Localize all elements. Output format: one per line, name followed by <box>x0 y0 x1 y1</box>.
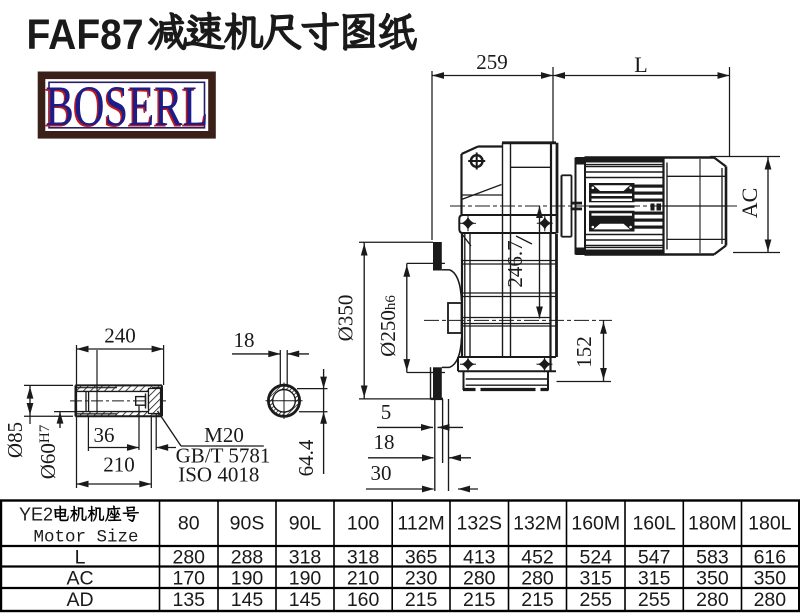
svg-text:100: 100 <box>347 513 380 535</box>
svg-text:452: 452 <box>521 547 554 569</box>
svg-text:547: 547 <box>638 547 671 569</box>
svg-text:246.7: 246.7 <box>503 240 527 287</box>
svg-text:64.4: 64.4 <box>294 439 318 476</box>
svg-text:AC: AC <box>737 188 762 219</box>
svg-text:Ø350: Ø350 <box>334 295 358 342</box>
svg-text:160: 160 <box>347 589 380 611</box>
svg-text:280: 280 <box>696 589 729 611</box>
svg-text:Ø85: Ø85 <box>3 422 27 458</box>
svg-text:BOSERL: BOSERL <box>46 75 209 138</box>
svg-text:YE2: YE2 <box>19 505 53 525</box>
svg-text:152: 152 <box>572 336 596 368</box>
svg-text:230: 230 <box>405 568 438 590</box>
svg-text:36: 36 <box>94 423 115 447</box>
svg-text:255: 255 <box>638 589 671 611</box>
svg-text:132M: 132M <box>513 513 562 535</box>
svg-text:145: 145 <box>289 589 322 611</box>
svg-text:135: 135 <box>172 589 205 611</box>
svg-text:145: 145 <box>231 589 264 611</box>
svg-text:5: 5 <box>381 400 392 424</box>
svg-text:FAF87: FAF87 <box>27 11 144 59</box>
svg-text:280: 280 <box>172 547 205 569</box>
svg-text:160M: 160M <box>571 513 620 535</box>
svg-text:350: 350 <box>754 568 787 590</box>
svg-text:190: 190 <box>289 568 322 590</box>
svg-text:280: 280 <box>521 568 554 590</box>
svg-text:90S: 90S <box>230 513 265 535</box>
svg-text:259: 259 <box>476 50 508 74</box>
svg-text:160L: 160L <box>632 513 676 535</box>
svg-text:215: 215 <box>405 589 438 611</box>
svg-text:215: 215 <box>463 589 496 611</box>
svg-text:ISO 4018: ISO 4018 <box>178 463 259 487</box>
svg-text:318: 318 <box>347 547 380 569</box>
svg-text:318: 318 <box>289 547 322 569</box>
svg-text:280: 280 <box>463 568 496 590</box>
svg-text:215: 215 <box>521 589 554 611</box>
svg-text:524: 524 <box>579 547 612 569</box>
svg-text:210: 210 <box>103 453 135 477</box>
svg-text:616: 616 <box>754 547 787 569</box>
svg-text:30: 30 <box>371 461 392 485</box>
svg-text:Motor Size: Motor Size <box>33 528 138 548</box>
svg-text:413: 413 <box>463 547 496 569</box>
svg-text:255: 255 <box>579 589 612 611</box>
svg-text:180L: 180L <box>748 513 792 535</box>
svg-text:350: 350 <box>696 568 729 590</box>
svg-text:170: 170 <box>172 568 205 590</box>
svg-text:315: 315 <box>638 568 671 590</box>
svg-text:18: 18 <box>234 328 255 352</box>
svg-text:190: 190 <box>231 568 264 590</box>
svg-text:L: L <box>75 547 86 569</box>
svg-text:132S: 132S <box>456 513 502 535</box>
svg-text:L: L <box>634 52 647 77</box>
svg-text:240: 240 <box>104 324 136 348</box>
svg-text:AC: AC <box>66 568 93 590</box>
svg-text:18: 18 <box>374 430 395 454</box>
svg-text:280: 280 <box>754 589 787 611</box>
svg-text:288: 288 <box>231 547 264 569</box>
svg-text:80: 80 <box>178 513 200 535</box>
svg-text:112M: 112M <box>397 513 444 535</box>
svg-text:210: 210 <box>347 568 380 590</box>
svg-text:90L: 90L <box>289 513 322 535</box>
svg-text:365: 365 <box>405 547 438 569</box>
svg-text:583: 583 <box>696 547 729 569</box>
svg-text:AD: AD <box>66 589 93 611</box>
svg-text:180M: 180M <box>688 513 737 535</box>
svg-text:315: 315 <box>579 568 612 590</box>
